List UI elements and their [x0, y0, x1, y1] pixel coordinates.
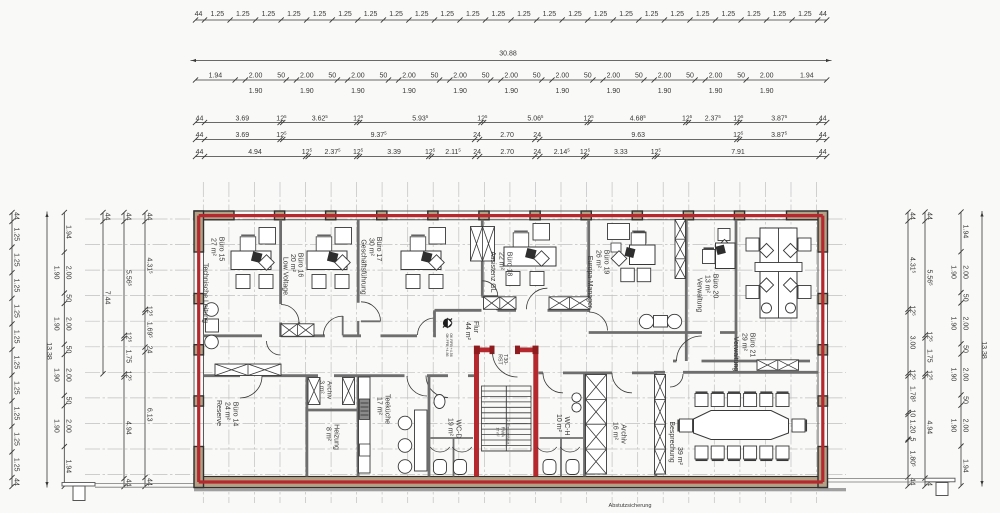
svg-text:Geschäftsführung: Geschäftsführung	[360, 239, 367, 294]
svg-text:Verwaltung: Verwaltung	[696, 278, 703, 313]
svg-text:2.00: 2.00	[65, 368, 72, 382]
svg-text:Büro 18: Büro 18	[506, 252, 513, 277]
svg-text:1.25: 1.25	[338, 11, 352, 18]
svg-text:22 m²: 22 m²	[497, 252, 504, 271]
svg-text:10 m²: 10 m²	[555, 414, 562, 433]
svg-text:1.25: 1.25	[568, 11, 582, 18]
svg-text:1.90: 1.90	[453, 88, 467, 95]
svg-text:44: 44	[819, 115, 827, 122]
svg-text:1.25: 1.25	[645, 11, 659, 18]
svg-text:50: 50	[277, 72, 285, 79]
svg-text:50: 50	[737, 72, 745, 79]
svg-text:3.33: 3.33	[614, 149, 628, 156]
svg-text:1.25: 1.25	[491, 11, 505, 18]
svg-text:1.94: 1.94	[65, 225, 72, 239]
svg-text:3.69: 3.69	[235, 115, 249, 122]
svg-text:2.00: 2.00	[402, 72, 416, 79]
svg-text:1.94: 1.94	[961, 459, 968, 473]
svg-text:1.94: 1.94	[800, 72, 814, 79]
svg-text:50: 50	[328, 72, 336, 79]
svg-text:1.25: 1.25	[364, 11, 378, 18]
svg-text:44: 44	[819, 132, 827, 139]
svg-text:24 m²: 24 m²	[223, 402, 230, 421]
svg-text:2.00: 2.00	[961, 368, 968, 382]
svg-text:19 m²: 19 m²	[447, 418, 454, 437]
svg-text:8 m²: 8 m²	[324, 427, 331, 442]
svg-text:26 m²: 26 m²	[594, 250, 601, 269]
svg-text:1.25: 1.25	[594, 11, 608, 18]
svg-text:RST: RST	[496, 354, 502, 365]
svg-text:1.90: 1.90	[53, 419, 60, 433]
svg-text:Büro 21: Büro 21	[749, 333, 756, 358]
svg-text:44: 44	[12, 478, 19, 486]
svg-text:20 m²: 20 m²	[289, 254, 296, 273]
svg-text:1.25: 1.25	[236, 11, 250, 18]
svg-text:44: 44	[103, 213, 110, 221]
svg-text:50: 50	[533, 72, 541, 79]
svg-text:10: 10	[908, 410, 915, 418]
svg-text:44: 44	[196, 115, 204, 122]
svg-text:1.25: 1.25	[773, 11, 787, 18]
svg-text:Archiv: Archiv	[326, 381, 333, 400]
svg-text:Besprechung: Besprechung	[668, 421, 675, 462]
svg-text:7.44: 7.44	[103, 291, 110, 305]
svg-text:2.00: 2.00	[65, 317, 72, 331]
svg-text:Technische Leitung: Technische Leitung	[202, 263, 209, 323]
svg-text:1.90: 1.90	[607, 88, 621, 95]
svg-text:1.25: 1.25	[798, 11, 812, 18]
svg-text:1.25: 1.25	[389, 11, 403, 18]
svg-text:44: 44	[925, 212, 932, 220]
svg-text:50: 50	[380, 72, 388, 79]
svg-text:2.00: 2.00	[658, 72, 672, 79]
svg-text:4.94: 4.94	[124, 421, 131, 435]
svg-text:2.00: 2.00	[65, 266, 72, 280]
svg-text:6.13: 6.13	[145, 408, 152, 422]
svg-text:1.90: 1.90	[949, 316, 956, 330]
svg-text:1.94: 1.94	[65, 460, 72, 474]
svg-text:1.25: 1.25	[262, 11, 276, 18]
svg-text:1.90: 1.90	[351, 88, 365, 95]
svg-text:50: 50	[482, 72, 490, 79]
svg-text:44: 44	[196, 149, 204, 156]
svg-text:44: 44	[819, 11, 827, 18]
svg-text:3.39: 3.39	[387, 149, 401, 156]
svg-text:1.90: 1.90	[949, 265, 956, 279]
svg-text:24: 24	[473, 149, 481, 156]
svg-text:44: 44	[196, 132, 204, 139]
svg-text:Teeküche: Teeküche	[384, 394, 391, 424]
svg-text:50: 50	[65, 397, 72, 405]
svg-text:50: 50	[961, 294, 968, 302]
svg-text:1.25: 1.25	[543, 11, 557, 18]
svg-text:Heizung: Heizung	[333, 424, 340, 450]
svg-text:1.90: 1.90	[658, 88, 672, 95]
svg-text:50: 50	[65, 346, 72, 354]
svg-text:Büro 20: Büro 20	[712, 274, 719, 299]
svg-text:2.00: 2.00	[65, 419, 72, 433]
svg-text:44: 44	[12, 212, 19, 220]
svg-text:Büro 15: Büro 15	[218, 237, 225, 262]
svg-text:17 m²: 17 m²	[376, 397, 383, 416]
svg-text:4.94: 4.94	[248, 149, 262, 156]
svg-text:2.00: 2.00	[351, 72, 365, 79]
svg-text:44: 44	[145, 213, 152, 221]
svg-text:2.00: 2.00	[607, 72, 621, 79]
svg-text:29 m²: 29 m²	[740, 333, 747, 352]
svg-text:Abstutzsicherung: Abstutzsicherung	[609, 503, 652, 509]
svg-text:50: 50	[686, 72, 694, 79]
svg-text:1.75: 1.75	[925, 349, 932, 363]
svg-text:WC-D: WC-D	[455, 419, 462, 438]
svg-text:1.25: 1.25	[12, 458, 19, 472]
svg-text:1.25: 1.25	[696, 11, 710, 18]
svg-text:1.90: 1.90	[249, 88, 263, 95]
svg-text:1.25: 1.25	[12, 227, 19, 241]
svg-text:2.00: 2.00	[961, 419, 968, 433]
svg-text:1.25: 1.25	[12, 279, 19, 293]
svg-text:RWA: RWA	[501, 427, 506, 438]
svg-text:2.00: 2.00	[249, 72, 263, 79]
svg-text:5: 5	[908, 438, 915, 442]
svg-text:50: 50	[961, 345, 968, 353]
svg-text:1.90: 1.90	[949, 419, 956, 433]
svg-text:44: 44	[124, 479, 131, 487]
svg-text:1.25: 1.25	[721, 11, 735, 18]
svg-text:44: 44	[145, 478, 152, 486]
svg-text:13.38: 13.38	[980, 341, 987, 359]
svg-text:30 m²: 30 m²	[367, 238, 374, 257]
svg-text:3 m²: 3 m²	[318, 380, 325, 394]
svg-text:Büro 16: Büro 16	[297, 253, 304, 278]
svg-text:2.00: 2.00	[300, 72, 314, 79]
svg-text:OK RFB +4.56: OK RFB +4.56	[449, 333, 453, 356]
svg-text:1.25: 1.25	[12, 253, 19, 267]
svg-text:24: 24	[533, 132, 541, 139]
svg-text:1.25: 1.25	[12, 355, 19, 369]
svg-text:24: 24	[473, 132, 481, 139]
svg-text:3.69: 3.69	[235, 132, 249, 139]
svg-text:44: 44	[124, 213, 131, 221]
svg-text:1.90: 1.90	[53, 368, 60, 382]
svg-text:1.94: 1.94	[961, 225, 968, 239]
svg-text:Büro 19: Büro 19	[603, 250, 610, 275]
svg-text:1.75: 1.75	[124, 350, 131, 364]
svg-text:1.90: 1.90	[53, 317, 60, 331]
svg-text:Verwaltung: Verwaltung	[732, 337, 739, 372]
svg-text:9.63: 9.63	[631, 132, 645, 139]
svg-text:1.25: 1.25	[415, 11, 429, 18]
svg-text:44: 44	[908, 212, 915, 220]
svg-text:2.70: 2.70	[500, 132, 514, 139]
svg-text:2.00: 2.00	[961, 316, 968, 330]
svg-text:30.88: 30.88	[499, 51, 517, 58]
svg-text:1.20: 1.20	[908, 420, 915, 434]
svg-text:1.90: 1.90	[949, 368, 956, 382]
svg-text:2.00: 2.00	[504, 72, 518, 79]
svg-text:1.25: 1.25	[12, 432, 19, 446]
svg-text:1.94: 1.94	[209, 72, 223, 79]
svg-text:WC-H: WC-H	[563, 416, 570, 435]
svg-text:44: 44	[195, 11, 203, 18]
svg-text:50: 50	[431, 72, 439, 79]
svg-text:50: 50	[584, 72, 592, 79]
svg-text:50: 50	[635, 72, 643, 79]
svg-text:39 m²: 39 m²	[676, 447, 683, 466]
svg-text:1.25: 1.25	[313, 11, 327, 18]
svg-text:2.00: 2.00	[453, 72, 467, 79]
svg-text:1.25: 1.25	[670, 11, 684, 18]
svg-text:1.90: 1.90	[300, 88, 314, 95]
svg-text:2.00: 2.00	[760, 72, 774, 79]
svg-text:1.25: 1.25	[747, 11, 761, 18]
svg-text:Assistenz GL: Assistenz GL	[489, 251, 496, 292]
svg-text:1.25: 1.25	[210, 11, 224, 18]
svg-text:44 m²: 44 m²	[464, 322, 471, 341]
svg-text:7.91: 7.91	[731, 149, 745, 156]
svg-text:1.90: 1.90	[402, 88, 416, 95]
svg-text:Flur: Flur	[472, 321, 479, 334]
svg-text:Reserve: Reserve	[215, 400, 222, 426]
svg-text:1.90: 1.90	[53, 266, 60, 280]
svg-text:Europa-Manager: Europa-Manager	[586, 256, 593, 309]
svg-text:1.90: 1.90	[504, 88, 518, 95]
svg-text:27 m²: 27 m²	[210, 238, 217, 257]
svg-text:50: 50	[65, 294, 72, 302]
svg-text:Low Voltage: Low Voltage	[282, 257, 289, 295]
svg-text:1.90: 1.90	[709, 88, 723, 95]
svg-text:17 m²: 17 m²	[496, 427, 500, 437]
svg-text:1.90: 1.90	[555, 88, 569, 95]
svg-text:2.70: 2.70	[500, 149, 514, 156]
svg-text:Archiv: Archiv	[620, 424, 627, 444]
svg-text:OK FFB +4.86: OK FFB +4.86	[445, 333, 449, 356]
svg-text:2.00: 2.00	[961, 265, 968, 279]
svg-text:1.90: 1.90	[760, 88, 774, 95]
svg-text:4.94: 4.94	[925, 420, 932, 434]
svg-text:1.25: 1.25	[12, 381, 19, 395]
svg-text:Büro 14: Büro 14	[232, 402, 239, 427]
svg-text:Büro 17: Büro 17	[375, 237, 382, 262]
svg-text:2.00: 2.00	[555, 72, 569, 79]
svg-text:2.00: 2.00	[709, 72, 723, 79]
svg-text:13.38: 13.38	[45, 342, 52, 360]
svg-text:1.25: 1.25	[440, 11, 454, 18]
svg-text:1.25: 1.25	[619, 11, 633, 18]
svg-text:50: 50	[961, 396, 968, 404]
svg-text:24: 24	[533, 149, 541, 156]
svg-text:2. Treppenhaus: 2. Treppenhaus	[506, 420, 510, 445]
svg-text:3.00: 3.00	[908, 336, 915, 350]
svg-text:13 m²: 13 m²	[704, 275, 711, 294]
svg-text:1.25: 1.25	[12, 330, 19, 344]
svg-text:1.25: 1.25	[466, 11, 480, 18]
svg-text:1.25: 1.25	[12, 304, 19, 318]
svg-text:1.25: 1.25	[12, 407, 19, 421]
svg-text:1.25: 1.25	[517, 11, 531, 18]
svg-text:44: 44	[819, 149, 827, 156]
svg-text:16 m²: 16 m²	[611, 422, 618, 441]
svg-text:24: 24	[145, 346, 152, 354]
svg-text:1.25: 1.25	[287, 11, 301, 18]
